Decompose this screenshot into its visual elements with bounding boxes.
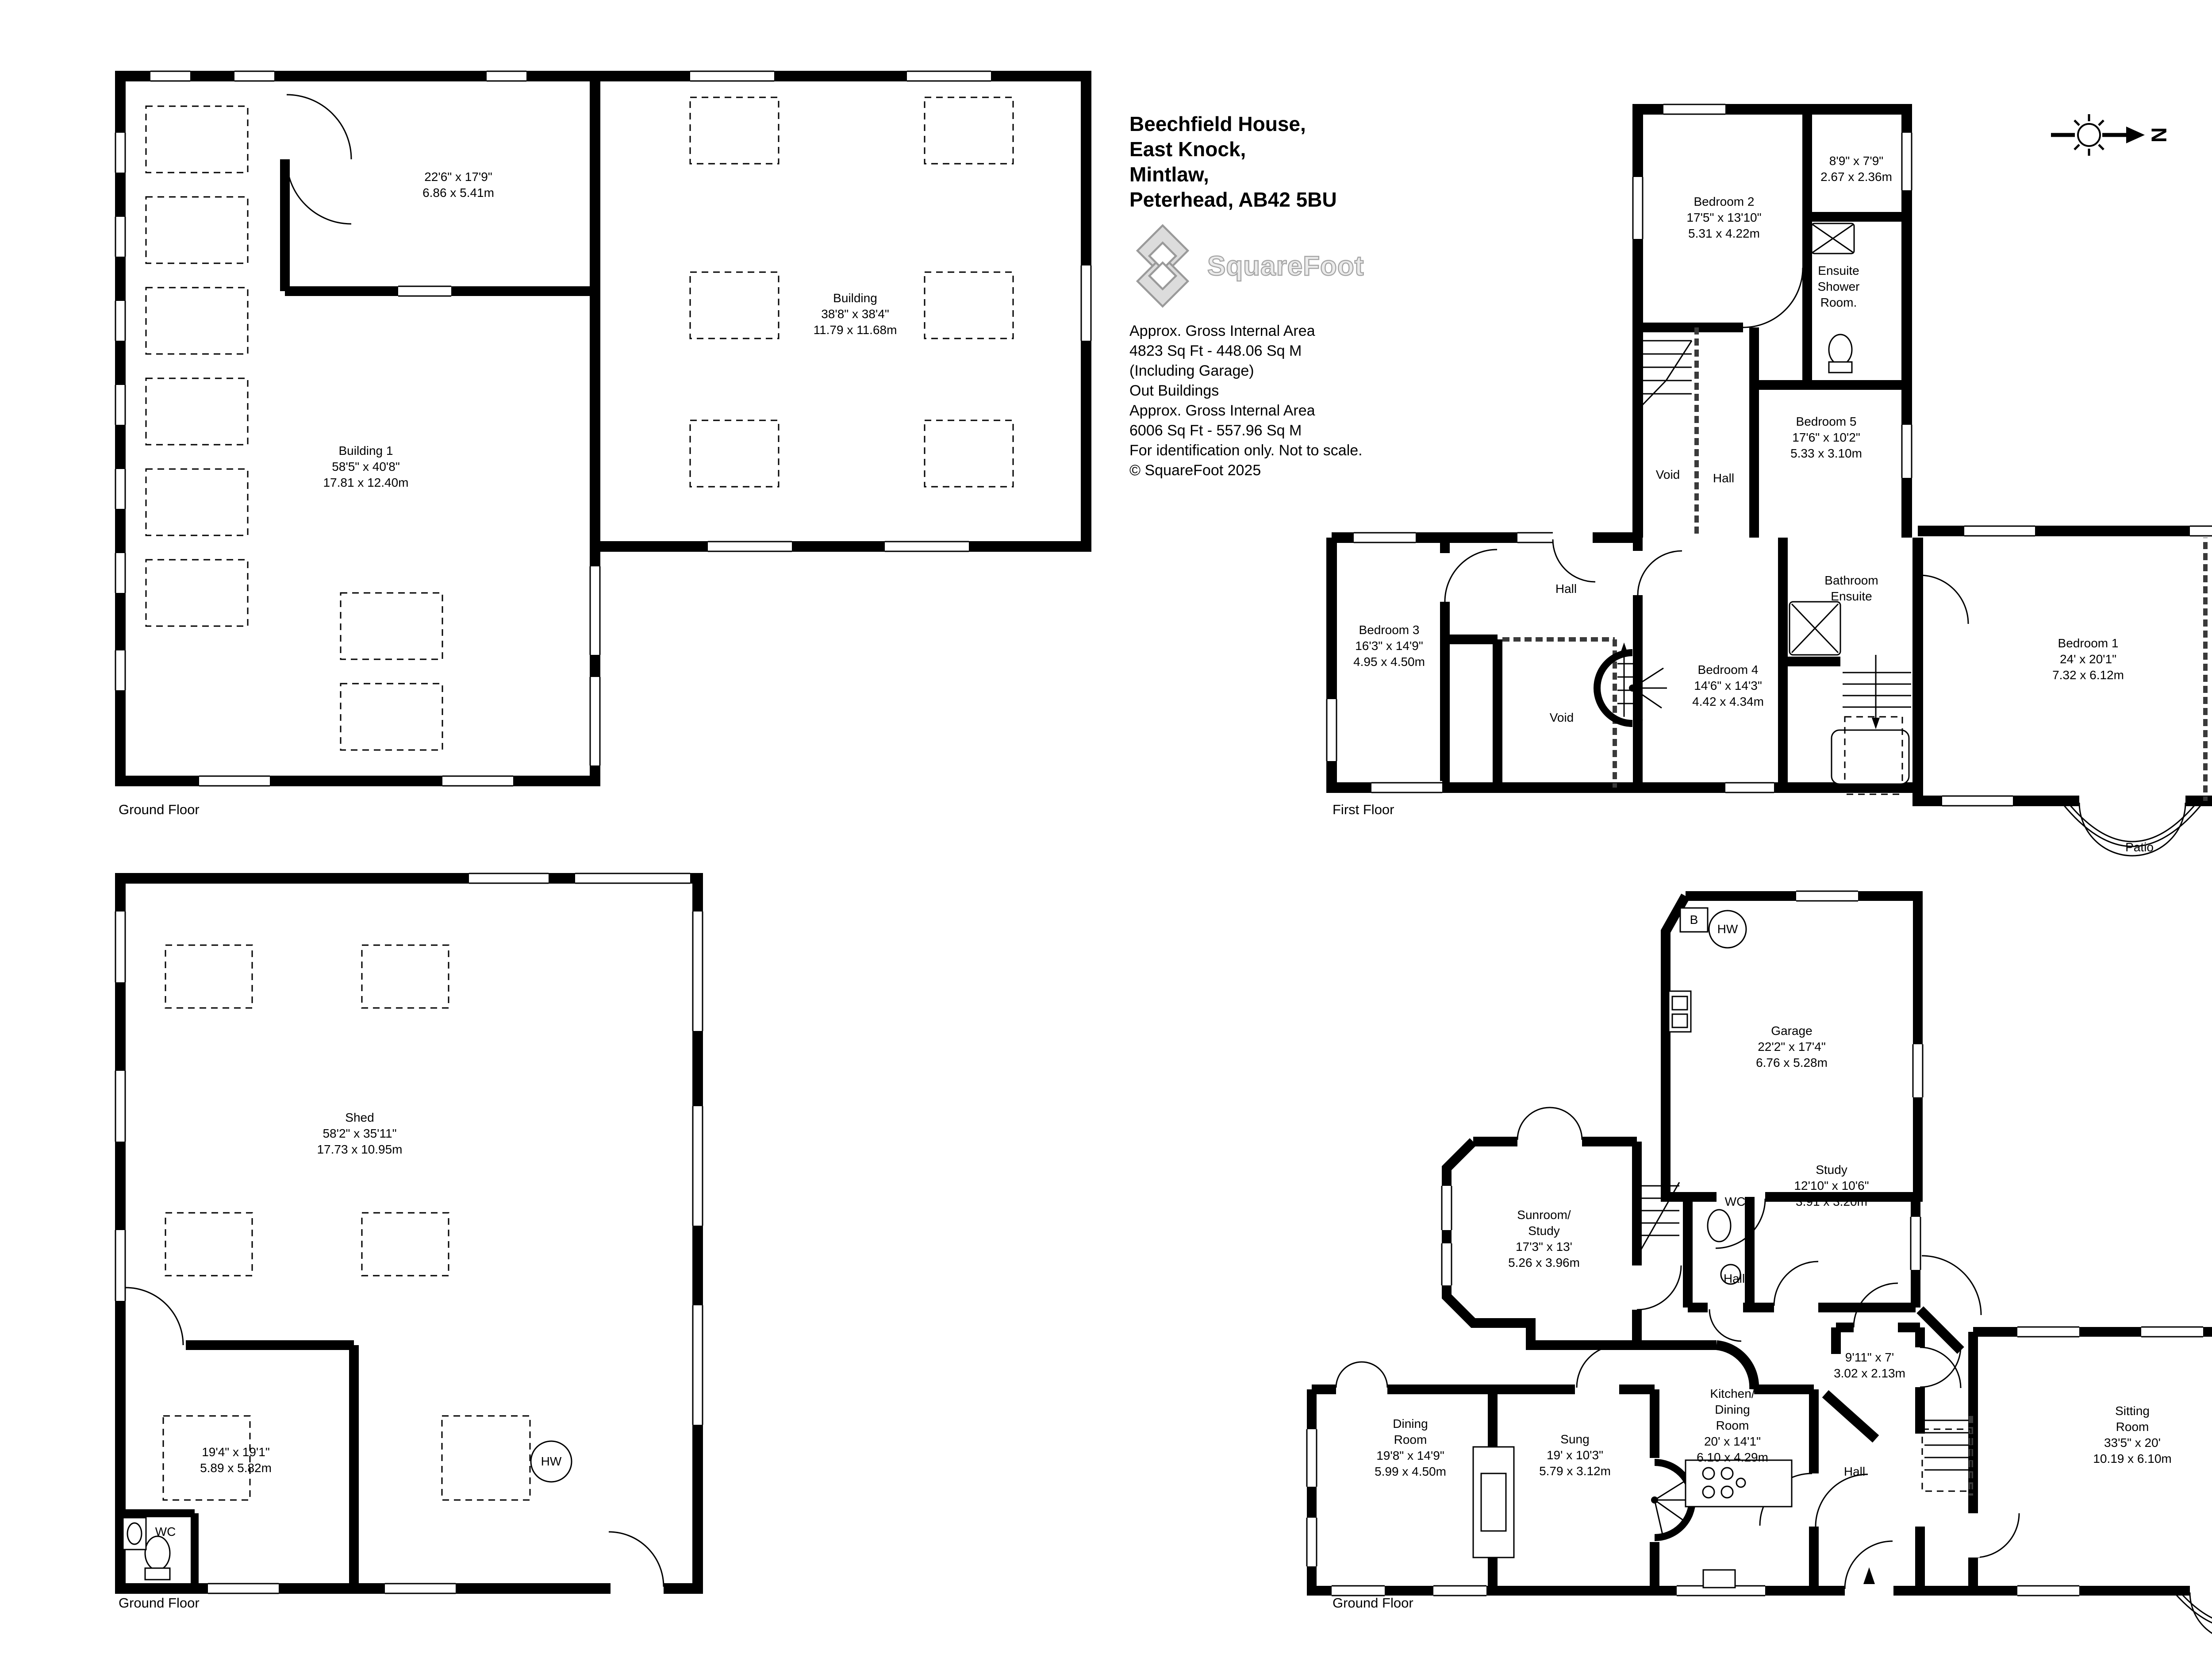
detail-line: For identification only. Not to scale. — [1129, 441, 1594, 461]
room-name: Dining — [1375, 1416, 1446, 1432]
room-name: Sitting — [2093, 1403, 2171, 1419]
room-name: Study — [1508, 1223, 1580, 1239]
room-dim: 20' x 14'1" — [1697, 1434, 1768, 1450]
staircase-icon — [1640, 341, 1692, 407]
detail-line: Approx. Gross Internal Area — [1129, 401, 1594, 421]
room-name: Shower — [1818, 279, 1860, 295]
room-name: Dining — [1697, 1402, 1768, 1418]
room-name: Hall — [1713, 470, 1734, 486]
room-name: HW — [541, 1454, 562, 1469]
staircase-icon — [1640, 1182, 1679, 1252]
windows — [115, 71, 1091, 786]
room-dim: 17'3" x 13' — [1508, 1239, 1580, 1255]
area-details: Approx. Gross Internal Area 4823 Sq Ft -… — [1129, 321, 1594, 481]
floorplan-house-ground — [1301, 867, 2212, 1664]
floorplan-shed — [102, 858, 730, 1650]
room-dim: 5.26 x 3.96m — [1508, 1255, 1580, 1271]
room-name: Bedroom 2 — [1686, 194, 1761, 210]
room-label-sung: Sung 19' x 10'3" 5.79 x 3.12m — [1539, 1431, 1611, 1479]
room-name: HW — [1717, 921, 1738, 937]
logo-text: SquareFoot — [1207, 250, 1364, 282]
detail-line: (Including Garage) — [1129, 361, 1594, 381]
room-label-bathroom-ensuite: Bathroom Ensuite — [1824, 573, 1878, 604]
room-label-kitchen-dining: Kitchen/ Dining Room 20' x 14'1" 6.10 x … — [1697, 1386, 1768, 1465]
room-dim: 17.73 x 10.95m — [317, 1142, 402, 1158]
room-label-bedroom-5: Bedroom 5 17'6" x 10'2" 5.33 x 3.10m — [1790, 414, 1862, 462]
room-name: Bedroom 4 — [1692, 662, 1764, 678]
room-dim: 3.91 x 3.20m — [1794, 1194, 1869, 1210]
detail-line: Approx. Gross Internal Area — [1129, 321, 1594, 341]
room-label-building: Building 38'8" x 38'4" 11.79 x 11.68m — [814, 290, 897, 338]
room-dim: 33'5" x 20' — [2093, 1435, 2171, 1451]
room-dim: 19'8" x 14'9" — [1375, 1448, 1446, 1464]
room-name: Bedroom 3 — [1353, 622, 1425, 638]
room-label-void-main: Void — [1550, 710, 1574, 726]
room-dim: 58'2" x 35'11" — [317, 1126, 402, 1142]
windows — [115, 873, 703, 1593]
room-dim: 16'3" x 14'9" — [1353, 638, 1425, 654]
sink-icon — [1703, 1570, 1735, 1588]
room-dim: 17'5" x 13'10" — [1686, 210, 1761, 226]
room-label-8-9: 8'9" x 7'9" 2.67 x 2.36m — [1820, 153, 1892, 185]
detail-line: 6006 Sq Ft - 557.96 Sq M — [1129, 421, 1594, 441]
room-name: Study — [1794, 1162, 1869, 1178]
door-arc — [287, 159, 351, 224]
toilet-icon — [1829, 335, 1852, 365]
room-dim: 5.99 x 4.50m — [1375, 1464, 1446, 1480]
room-name: Room — [2093, 1419, 2171, 1435]
room-name: Garage — [1756, 1023, 1828, 1039]
floor-label-house-ground: Ground Floor — [1333, 1595, 1413, 1611]
room-dim: 14'6" x 14'3" — [1692, 678, 1764, 694]
room-name: Bedroom 1 — [2052, 635, 2124, 651]
room-label-sunroom-study: Sunroom/ Study 17'3" x 13' 5.26 x 3.96m — [1508, 1207, 1580, 1271]
title-block: Beechfield House, East Knock, Mintlaw, P… — [1129, 112, 1594, 481]
bath-icon — [1832, 730, 1909, 784]
fixtures — [123, 945, 572, 1580]
walls — [120, 76, 1086, 781]
fireplace-icon — [1473, 1447, 1514, 1558]
room-label-bedroom-1: Bedroom 1 24' x 20'1" 7.32 x 6.12m — [2052, 635, 2124, 683]
staircase-icon — [1843, 655, 1911, 721]
room-label-dining-room: Dining Room 19'8" x 14'9" 5.99 x 4.50m — [1375, 1416, 1446, 1480]
room-name: Shed — [317, 1110, 402, 1126]
doors — [1336, 1108, 2212, 1641]
room-dim: 8'9" x 7'9" — [1820, 153, 1892, 169]
room-name: Building 1 — [323, 443, 408, 459]
room-name: Sunroom/ — [1508, 1207, 1580, 1223]
room-name: WC — [1725, 1194, 1746, 1210]
staircase-icon — [1617, 650, 1635, 717]
floor-label-shed: Ground Floor — [119, 1595, 200, 1611]
doors — [287, 95, 351, 224]
room-label-hall-main: Hall — [1555, 581, 1577, 597]
room-label-patio: Patio — [2125, 839, 2154, 855]
room-dim: 17.81 x 12.40m — [323, 475, 408, 491]
room-dim: 38'8" x 38'4" — [814, 306, 897, 322]
room-dim: 7.32 x 6.12m — [2052, 667, 2124, 683]
room-dim: 5.89 x 5.82m — [200, 1460, 272, 1476]
room-name: B — [1690, 912, 1698, 928]
room-name: Hall — [1724, 1271, 1745, 1287]
squarefoot-logo-icon — [1129, 224, 1196, 308]
room-dim: 2.67 x 2.36m — [1820, 169, 1892, 185]
room-label-garage: Garage 22'2" x 17'4" 6.76 x 5.28m — [1756, 1023, 1828, 1071]
room-label-9-11: 9'11" x 7' 3.02 x 2.13m — [1834, 1350, 1905, 1381]
toilet-icon — [1708, 1210, 1731, 1242]
room-label-void-upper: Void — [1656, 467, 1680, 483]
room-dim: 17'6" x 10'2" — [1790, 430, 1862, 446]
address-line: Beechfield House, — [1129, 112, 1594, 137]
floorplan-page: Beechfield House, East Knock, Mintlaw, P… — [0, 0, 2212, 1673]
room-dim: 3.02 x 2.13m — [1834, 1365, 1905, 1381]
room-label-shed-wc: WC — [155, 1524, 176, 1540]
room-dim: 11.79 x 11.68m — [814, 322, 897, 338]
room-name: Sung — [1539, 1431, 1611, 1447]
room-name: Bathroom — [1824, 573, 1878, 588]
room-label-sitting-room: Sitting Room 33'5" x 20' 10.19 x 6.10m — [2093, 1403, 2171, 1467]
room-dim: 6.76 x 5.28m — [1756, 1055, 1828, 1071]
toilet-icon — [145, 1536, 170, 1570]
room-name: Building — [814, 290, 897, 306]
room-dim: 12'10" x 10'6" — [1794, 1178, 1869, 1194]
room-label-shed-hw: HW — [541, 1454, 562, 1469]
room-dim: 19'4" x 19'1" — [200, 1444, 272, 1460]
room-dim: 6.86 x 5.41m — [422, 185, 494, 201]
room-dim: 5.33 x 3.10m — [1790, 446, 1862, 462]
address-line: Mintlaw, — [1129, 162, 1594, 187]
room-label-bedroom-3: Bedroom 3 16'3" x 14'9" 4.95 x 4.50m — [1353, 622, 1425, 670]
room-label-ensuite-shower: Ensuite Shower Room. — [1818, 263, 1860, 311]
floorplan-outbuildings — [102, 58, 1102, 819]
room-label-study: Study 12'10" x 10'6" 3.91 x 3.20m — [1794, 1162, 1869, 1210]
room-dim: 19' x 10'3" — [1539, 1447, 1611, 1463]
room-dim: 10.19 x 6.10m — [2093, 1451, 2171, 1467]
detail-line: Out Buildings — [1129, 381, 1594, 401]
squarefoot-logo: SquareFoot — [1129, 224, 1594, 308]
room-name: Void — [1656, 467, 1680, 483]
room-dim: 6.10 x 4.29m — [1697, 1450, 1768, 1465]
room-label-shed: Shed 58'2" x 35'11" 17.73 x 10.95m — [317, 1110, 402, 1158]
room-label-19-4: 19'4" x 19'1" 5.89 x 5.82m — [200, 1444, 272, 1476]
room-label-house-wc: WC — [1725, 1194, 1746, 1210]
room-dim: 24' x 20'1" — [2052, 651, 2124, 667]
room-name: Ensuite — [1824, 588, 1878, 604]
room-name: WC — [155, 1524, 176, 1540]
room-name: Hall — [1844, 1464, 1865, 1480]
room-label-bedroom-4: Bedroom 4 14'6" x 14'3" 4.42 x 4.34m — [1692, 662, 1764, 710]
room-name: Ensuite — [1818, 263, 1860, 279]
room-label-house-hw: HW — [1717, 921, 1738, 937]
room-label-boiler: B — [1690, 912, 1698, 928]
room-name: Patio — [2125, 839, 2154, 855]
walls — [120, 878, 698, 1588]
room-dim: 22'6" x 17'9" — [422, 169, 494, 185]
staircase-icon — [1924, 1420, 1969, 1470]
detail-line: © SquareFoot 2025 — [1129, 461, 1594, 481]
property-address: Beechfield House, East Knock, Mintlaw, P… — [1129, 112, 1594, 212]
room-dim: 22'2" x 17'4" — [1756, 1039, 1828, 1055]
room-name: Room. — [1818, 295, 1860, 311]
room-name: Room — [1697, 1418, 1768, 1434]
address-line: Peterhead, AB42 5BU — [1129, 187, 1594, 212]
floor-label-outbuildings: Ground Floor — [119, 802, 200, 818]
skylights — [146, 97, 1013, 750]
room-name: Hall — [1555, 581, 1577, 597]
floor-label-first-floor: First Floor — [1333, 802, 1394, 818]
room-dim: 5.31 x 4.22m — [1686, 226, 1761, 242]
room-label-hall-upper: Hall — [1713, 470, 1734, 486]
room-name: Void — [1550, 710, 1574, 726]
room-dim: 4.95 x 4.50m — [1353, 654, 1425, 670]
room-dim: 5.79 x 3.12m — [1539, 1463, 1611, 1479]
address-line: East Knock, — [1129, 137, 1594, 162]
room-label-house-hall: Hall — [1724, 1271, 1745, 1287]
room-label-building-1: Building 1 58'5" x 40'8" 17.81 x 12.40m — [323, 443, 408, 491]
room-name: Room — [1375, 1432, 1446, 1448]
room-dim: 58'5" x 40'8" — [323, 459, 408, 475]
detail-line: 4823 Sq Ft - 448.06 Sq M — [1129, 341, 1594, 361]
room-label-bedroom-2: Bedroom 2 17'5" x 13'10" 5.31 x 4.22m — [1686, 194, 1761, 242]
room-dim: 9'11" x 7' — [1834, 1350, 1905, 1365]
door-arc — [287, 95, 351, 159]
kitchen-island — [1686, 1460, 1792, 1507]
room-name: Bedroom 5 — [1790, 414, 1862, 430]
doors — [126, 1288, 664, 1588]
room-label-22-6: 22'6" x 17'9" 6.86 x 5.41m — [422, 169, 494, 201]
room-name: Kitchen/ — [1697, 1386, 1768, 1402]
room-dim: 4.42 x 4.34m — [1692, 694, 1764, 710]
room-label-hall-2: Hall — [1844, 1464, 1865, 1480]
